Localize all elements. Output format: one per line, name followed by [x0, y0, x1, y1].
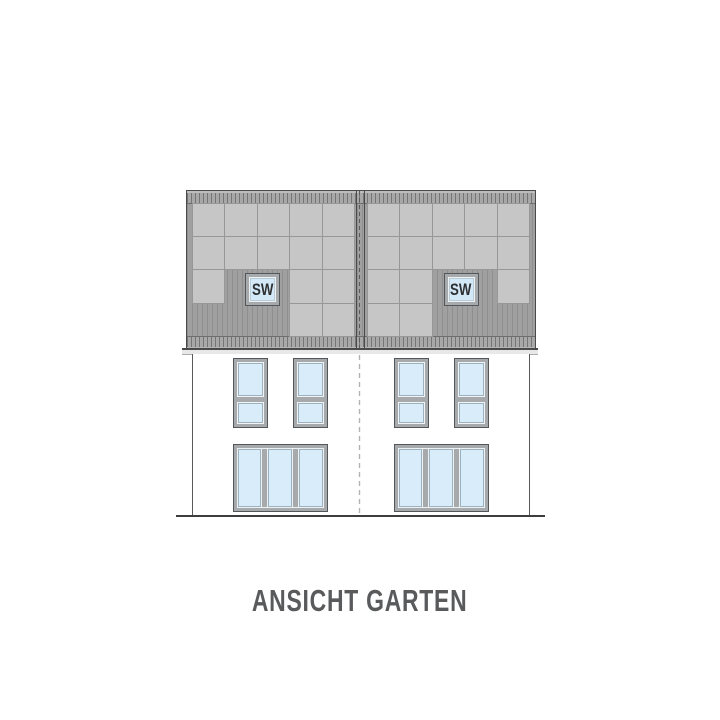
glass-pane	[399, 363, 424, 396]
window-lower-left	[233, 444, 328, 512]
transom-bar	[398, 397, 425, 402]
solar-panel	[399, 269, 433, 303]
glass-pane	[298, 363, 323, 396]
solar-panel	[399, 303, 433, 337]
glass-pane	[238, 403, 263, 423]
solar-panel	[192, 269, 226, 303]
roof-party-wall-edge-left	[356, 190, 357, 349]
glass-pane	[459, 403, 484, 423]
solar-panel	[497, 236, 531, 270]
ground-line	[176, 515, 545, 517]
roof-window-glass: SW	[448, 277, 475, 302]
solar-panel	[257, 236, 291, 270]
solar-panel	[432, 236, 466, 270]
window-frame	[398, 448, 485, 508]
transom-bar	[458, 397, 485, 402]
roof-window-label: SW	[450, 281, 471, 298]
solar-panel	[192, 236, 226, 270]
glass-pane	[399, 449, 423, 507]
glass-pane	[429, 449, 453, 507]
solar-panel-array-left	[192, 203, 356, 337]
solar-panel	[367, 303, 401, 337]
solar-panel	[367, 236, 401, 270]
glass-pane	[298, 403, 323, 423]
solar-panel	[289, 236, 323, 270]
solar-panel	[322, 236, 356, 270]
glass-pane	[238, 363, 263, 396]
solar-panel	[192, 203, 226, 237]
solar-panel	[257, 203, 291, 237]
glass-pane	[459, 363, 484, 396]
drawing-title: ANSICHT GARTEN	[0, 583, 720, 619]
transom-bar	[297, 397, 324, 402]
roof-window-right: SW	[444, 273, 479, 306]
mullion	[453, 449, 460, 507]
window-lower-right	[394, 444, 489, 512]
solar-panel-array-right	[367, 203, 531, 337]
solar-panel	[464, 236, 498, 270]
solar-panel	[367, 203, 401, 237]
window-upper-left-2	[293, 358, 328, 428]
solar-panel	[322, 203, 356, 237]
solar-panel	[289, 269, 323, 303]
window-upper-right-1	[394, 358, 429, 428]
solar-panel	[432, 203, 466, 237]
solar-panel	[289, 203, 323, 237]
roof-party-wall-edge-right	[364, 190, 365, 349]
window-frame	[458, 362, 485, 424]
drawing-title-text: ANSICHT GARTEN	[252, 583, 468, 619]
roof-window-left: SW	[245, 273, 280, 306]
solar-panel	[497, 203, 531, 237]
roof-window-label: SW	[252, 281, 273, 298]
solar-panel	[497, 269, 531, 303]
glass-pane	[399, 403, 424, 423]
solar-panel	[399, 203, 433, 237]
solar-panel	[224, 203, 258, 237]
roof-window-glass: SW	[249, 277, 276, 302]
solar-panel	[399, 236, 433, 270]
solar-panel	[464, 203, 498, 237]
mullion	[422, 449, 429, 507]
window-frame	[237, 362, 264, 424]
window-frame	[237, 448, 324, 508]
glass-pane	[268, 449, 292, 507]
solar-panel	[289, 303, 323, 337]
transom-bar	[237, 397, 264, 402]
glass-pane	[299, 449, 323, 507]
window-upper-right-2	[454, 358, 489, 428]
solar-panel	[322, 303, 356, 337]
glass-pane	[460, 449, 484, 507]
elevation-drawing-canvas: SW SW	[0, 0, 720, 720]
mullion	[261, 449, 268, 507]
glass-pane	[238, 449, 262, 507]
window-upper-left-1	[233, 358, 268, 428]
solar-panel	[322, 269, 356, 303]
window-frame	[398, 362, 425, 424]
solar-panel	[224, 236, 258, 270]
solar-panel	[367, 269, 401, 303]
mullion	[292, 449, 299, 507]
window-frame	[297, 362, 324, 424]
